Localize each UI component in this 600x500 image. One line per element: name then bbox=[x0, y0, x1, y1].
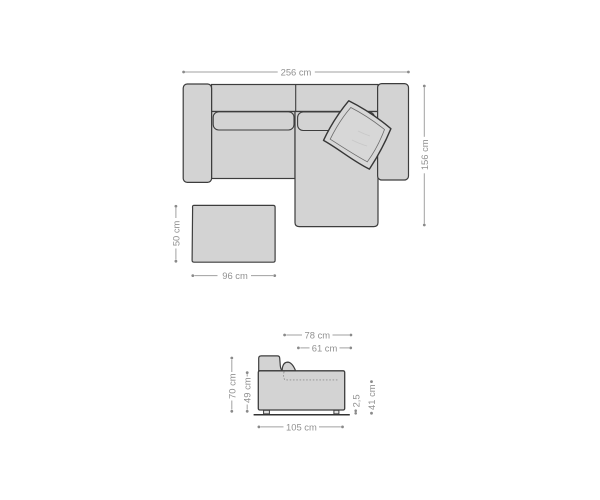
svg-text:50 cm: 50 cm bbox=[170, 220, 181, 246]
svg-text:41 cm: 41 cm bbox=[366, 384, 377, 410]
svg-text:61 cm: 61 cm bbox=[312, 342, 338, 353]
svg-text:256 cm: 256 cm bbox=[281, 66, 312, 77]
svg-text:70 cm: 70 cm bbox=[226, 373, 237, 399]
svg-text:2,5: 2,5 bbox=[350, 394, 361, 407]
svg-text:105 cm: 105 cm bbox=[286, 421, 317, 432]
svg-text:78 cm: 78 cm bbox=[305, 330, 331, 341]
svg-text:96 cm: 96 cm bbox=[222, 270, 248, 281]
svg-text:49 cm: 49 cm bbox=[242, 377, 253, 403]
svg-text:156 cm: 156 cm bbox=[419, 139, 430, 170]
